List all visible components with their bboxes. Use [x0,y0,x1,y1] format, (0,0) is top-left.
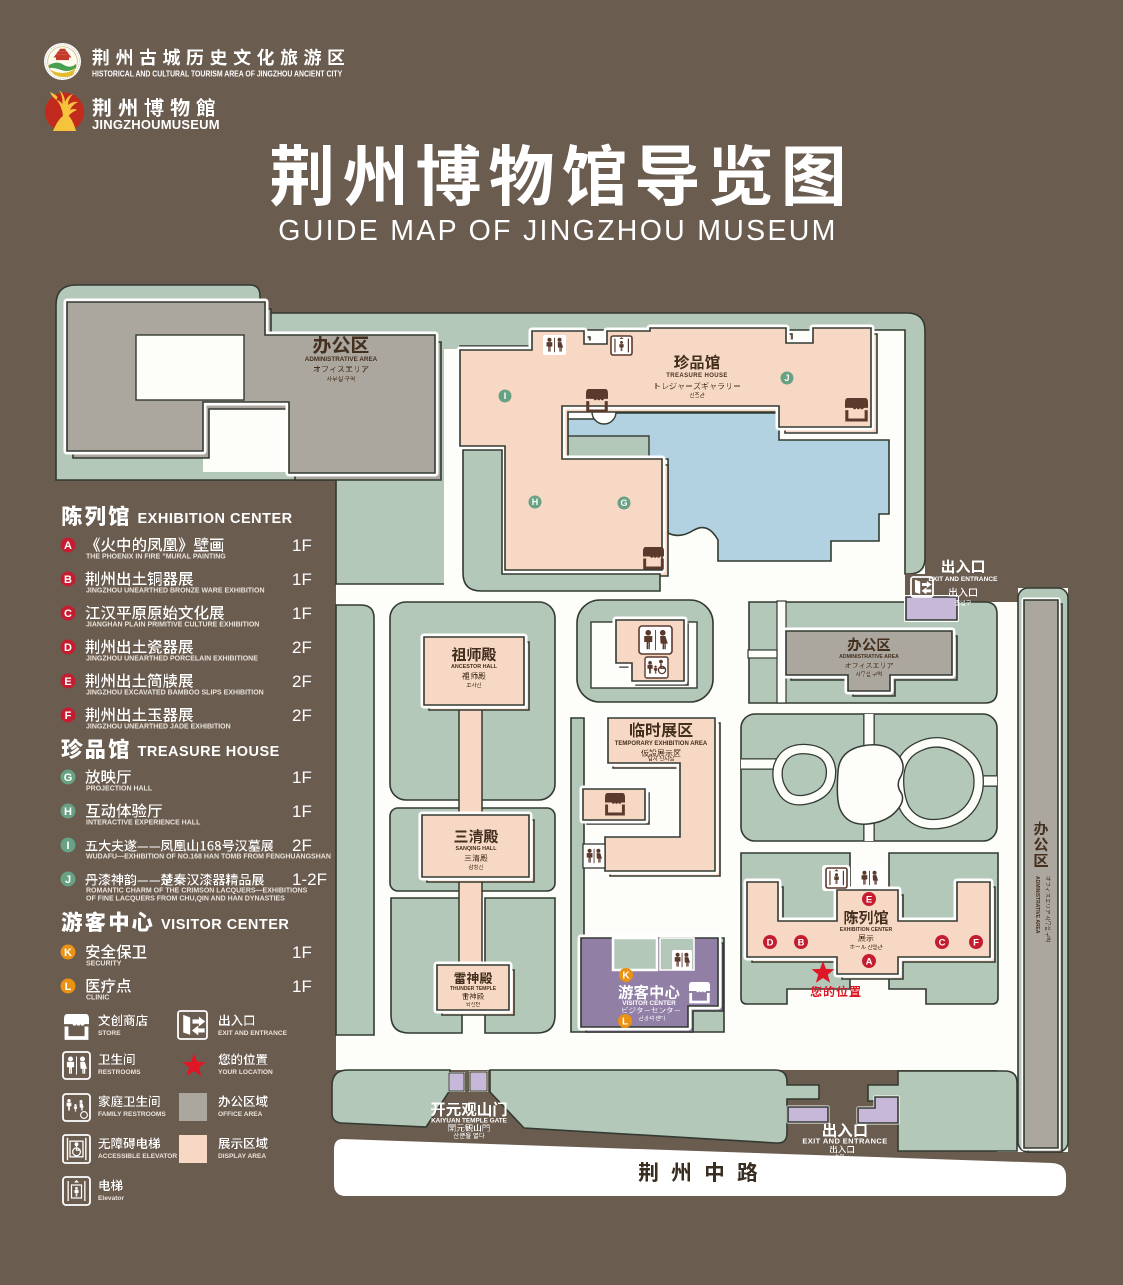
svg-text:PROJECTION HALL: PROJECTION HALL [86,786,153,793]
svg-text:L: L [622,1017,628,1028]
svg-text:CLINIC: CLINIC [86,995,109,1002]
svg-text:I: I [504,391,507,401]
svg-text:1F: 1F [292,768,312,787]
svg-text:JINGZHOUMUSEUM: JINGZHOUMUSEUM [92,117,220,132]
svg-text:H: H [64,806,72,818]
svg-text:EXIT AND ENTRANCE: EXIT AND ENTRANCE [802,1137,887,1146]
svg-text:KAIYUAN TEMPLE GATE: KAIYUAN TEMPLE GATE [431,1118,508,1125]
svg-text:B: B [64,574,72,586]
svg-text:ADMINISTRATIVE AREA: ADMINISTRATIVE AREA [305,356,378,363]
svg-text:A: A [866,956,873,967]
svg-text:DISPLAY AREA: DISPLAY AREA [218,1153,266,1160]
svg-text:TREASURE HOUSE: TREASURE HOUSE [666,373,728,379]
svg-text:JINGZHOU EXCAVATED BAMBOO SLIP: JINGZHOU EXCAVATED BAMBOO SLIPS EXHIBITI… [86,690,264,697]
svg-text:B: B [798,937,805,948]
svg-text:1F: 1F [292,943,312,962]
svg-text:ANCESTOR HALL: ANCESTOR HALL [451,664,498,670]
svg-text:ADMINISTRATIVE AREA: ADMINISTRATIVE AREA [839,654,899,660]
svg-text:C: C [939,937,946,948]
svg-text:TREASURE HOUSE: TREASURE HOUSE [138,744,280,760]
svg-text:HISTORICAL AND CULTURAL TOURIS: HISTORICAL AND CULTURAL TOURISM AREA OF … [92,69,342,79]
svg-text:RESTROOMS: RESTROOMS [98,1069,141,1076]
svg-text:JINGZHOU UNEARTHED BRONZE WARE: JINGZHOU UNEARTHED BRONZE WARE EXHIBITIO… [86,588,265,595]
svg-text:INTERACTIVE EXPERIENCE HALL: INTERACTIVE EXPERIENCE HALL [86,820,201,827]
svg-text:OFFICE AREA: OFFICE AREA [218,1111,263,1118]
svg-text:1F: 1F [292,604,312,623]
svg-text:A: A [64,540,72,552]
svg-text:SANQING HALL: SANQING HALL [455,846,497,852]
svg-text:1F: 1F [292,536,312,555]
svg-text:F: F [65,710,72,722]
svg-text:THE PHOENIX IN FIRE ”MURAL PAI: THE PHOENIX IN FIRE ”MURAL PAINTING [86,554,226,561]
svg-text:C: C [64,608,72,620]
svg-text:I: I [66,840,69,852]
svg-text:FAMILY RESTROOMS: FAMILY RESTROOMS [98,1111,166,1118]
svg-text:SECURITY: SECURITY [86,961,122,968]
svg-text:ACCESSIBLE ELEVATOR: ACCESSIBLE ELEVATOR [98,1153,177,1160]
svg-text:THUNDER TEMPLE: THUNDER TEMPLE [450,986,497,992]
svg-text:1-2F: 1-2F [292,870,327,889]
svg-text:L: L [65,981,72,993]
svg-text:2F: 2F [292,672,312,691]
svg-text:ROMANTIC CHARM OF THE CRIMSON: ROMANTIC CHARM OF THE CRIMSON LACQUERS—E… [86,888,308,895]
svg-text:D: D [64,642,72,654]
svg-text:STORE: STORE [98,1030,121,1037]
svg-text:E: E [866,894,872,905]
svg-text:2F: 2F [292,836,312,855]
svg-text:JINGZHOU UNEARTHED PORCELAIN E: JINGZHOU UNEARTHED PORCELAIN EXHIBITIONE [86,656,258,663]
svg-text:1F: 1F [292,977,312,996]
svg-text:J: J [65,874,71,886]
svg-text:D: D [767,937,774,948]
svg-text:EXIT AND ENTRANCE: EXIT AND ENTRANCE [218,1030,288,1037]
svg-text:VISITOR CENTER: VISITOR CENTER [622,1000,676,1007]
svg-text:VISITOR CENTER: VISITOR CENTER [161,917,289,933]
svg-text:E: E [64,676,71,688]
svg-text:JINGZHOU UNEARTHED JADE EXHIBI: JINGZHOU UNEARTHED JADE EXHIBITION [86,724,231,731]
svg-text:TEMPORARY EXHIBITION AREA: TEMPORARY EXHIBITION AREA [615,741,708,747]
svg-text:K: K [64,947,72,959]
svg-text:J: J [784,373,789,383]
svg-text:YOUR LOCATION: YOUR LOCATION [218,1069,273,1076]
svg-text:Elevator: Elevator [98,1195,124,1202]
svg-text:ADMINISTRATIVE AREA: ADMINISTRATIVE AREA [1034,876,1040,934]
svg-text:OF FINE LACQUERS FROM CHU,QIN: OF FINE LACQUERS FROM CHU,QIN AND HAN DY… [86,896,285,903]
svg-text:2F: 2F [292,638,312,657]
svg-text:2F: 2F [292,706,312,725]
svg-text:1F: 1F [292,570,312,589]
svg-text:1F: 1F [292,802,312,821]
svg-text:K: K [622,971,630,982]
svg-text:H: H [532,497,539,507]
svg-text:G: G [64,772,73,784]
svg-text:EXIT AND ENTRANCE: EXIT AND ENTRANCE [929,576,999,583]
svg-text:EXHIBITION CENTER: EXHIBITION CENTER [138,511,293,527]
svg-text:EXHIBITION CENTER: EXHIBITION CENTER [840,927,893,933]
svg-text:F: F [973,937,979,948]
svg-text:JIANGHAN PLAIN PRIMITIVE CULTU: JIANGHAN PLAIN PRIMITIVE CULTURE EXHIBIT… [86,622,259,629]
svg-text:GUIDE MAP OF JINGZHOU MUSEUM: GUIDE MAP OF JINGZHOU MUSEUM [278,215,837,247]
svg-text:G: G [620,498,627,508]
